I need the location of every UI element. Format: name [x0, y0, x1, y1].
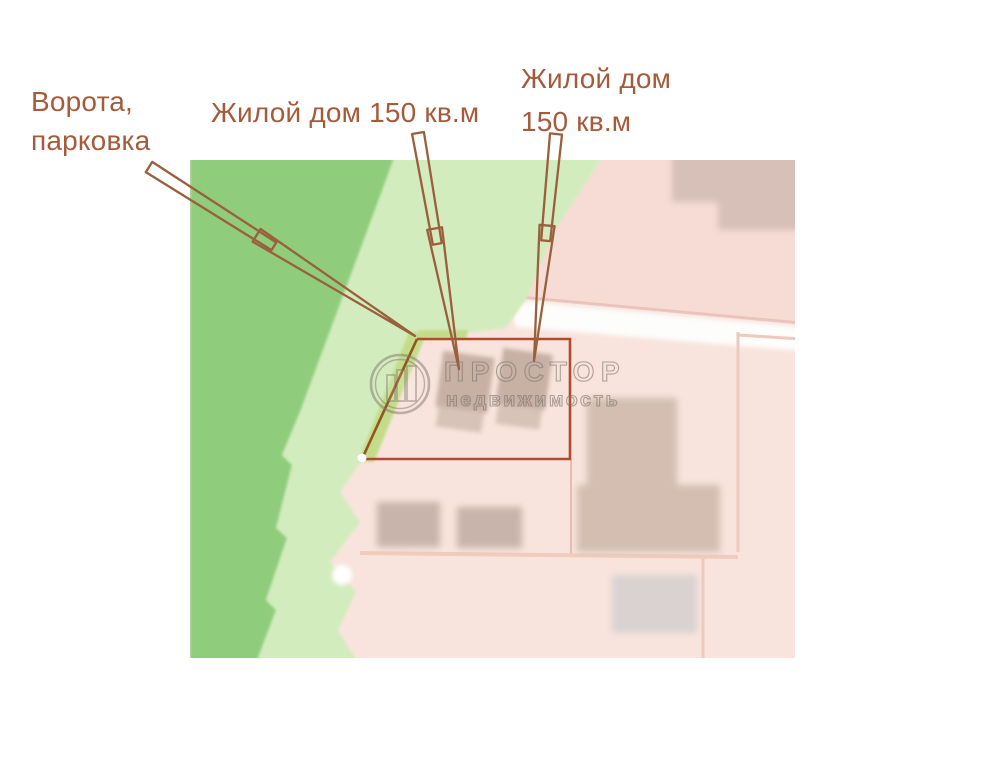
arrow-gate-parking — [146, 162, 415, 336]
annotated-map-image: ПРОСТОР недвижимость Ворота, парковка Жи… — [0, 0, 987, 768]
annotation-arrows — [0, 0, 987, 768]
arrow-house-center — [412, 132, 459, 369]
arrow-house-right — [534, 133, 562, 361]
